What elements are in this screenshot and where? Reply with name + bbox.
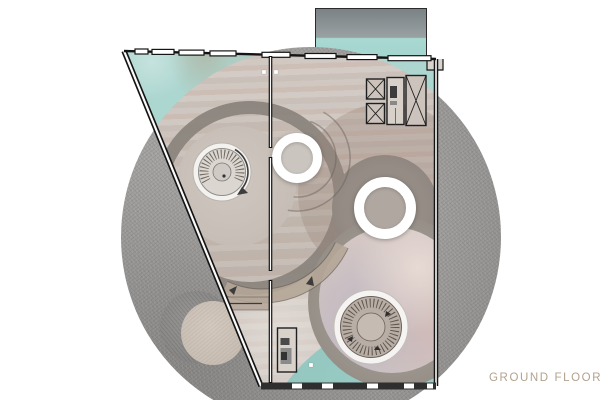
round-stair [334, 290, 408, 364]
top-windows [135, 49, 431, 61]
column-marker-outside [461, 111, 465, 115]
plan-linework [0, 0, 600, 400]
kiosk-fixture [278, 328, 297, 372]
oculus-guide-arcs [288, 112, 350, 211]
caption-ground-floor: GROUND FLOOR - B [489, 372, 600, 384]
bottom-wall [261, 383, 436, 390]
floor-plan-canvas: GROUND FLOOR - B [0, 0, 600, 400]
ramp-arc [222, 242, 348, 303]
ramp-straight [209, 297, 269, 310]
service-shaft [387, 78, 404, 125]
spiral-stair [193, 143, 251, 201]
